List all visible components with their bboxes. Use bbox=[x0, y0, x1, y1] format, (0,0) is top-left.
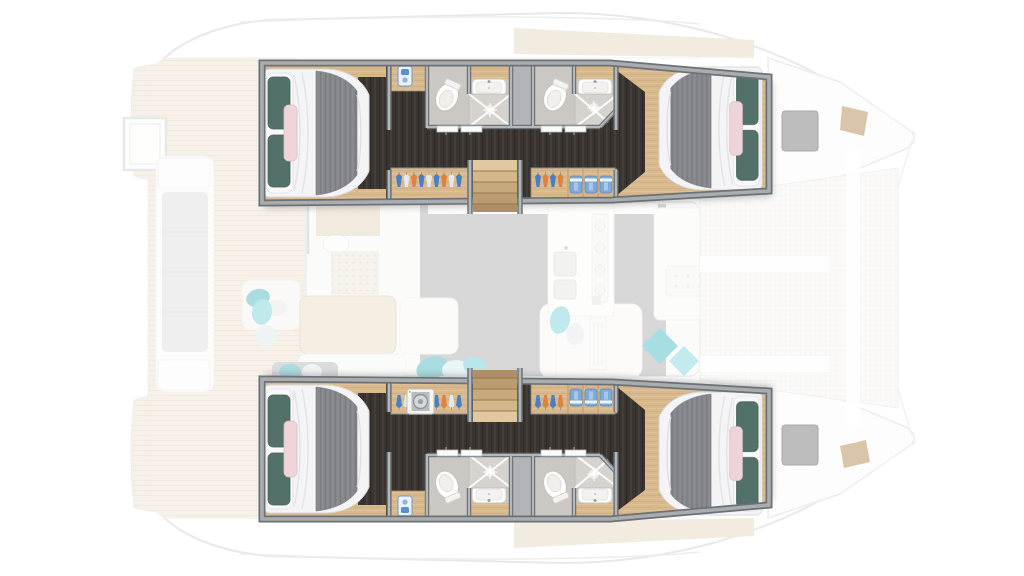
port-hull-suite bbox=[262, 63, 772, 214]
aft-lounge bbox=[156, 156, 214, 392]
galley-sink bbox=[554, 252, 576, 276]
deck-hatch bbox=[782, 111, 818, 151]
washing-machine bbox=[407, 389, 434, 414]
floorplan-stage bbox=[0, 0, 1024, 576]
catamaran-floorplan bbox=[0, 0, 1024, 576]
salon bbox=[298, 202, 700, 378]
deck-hatch bbox=[782, 425, 818, 465]
starboard-hull-suite bbox=[262, 368, 772, 519]
